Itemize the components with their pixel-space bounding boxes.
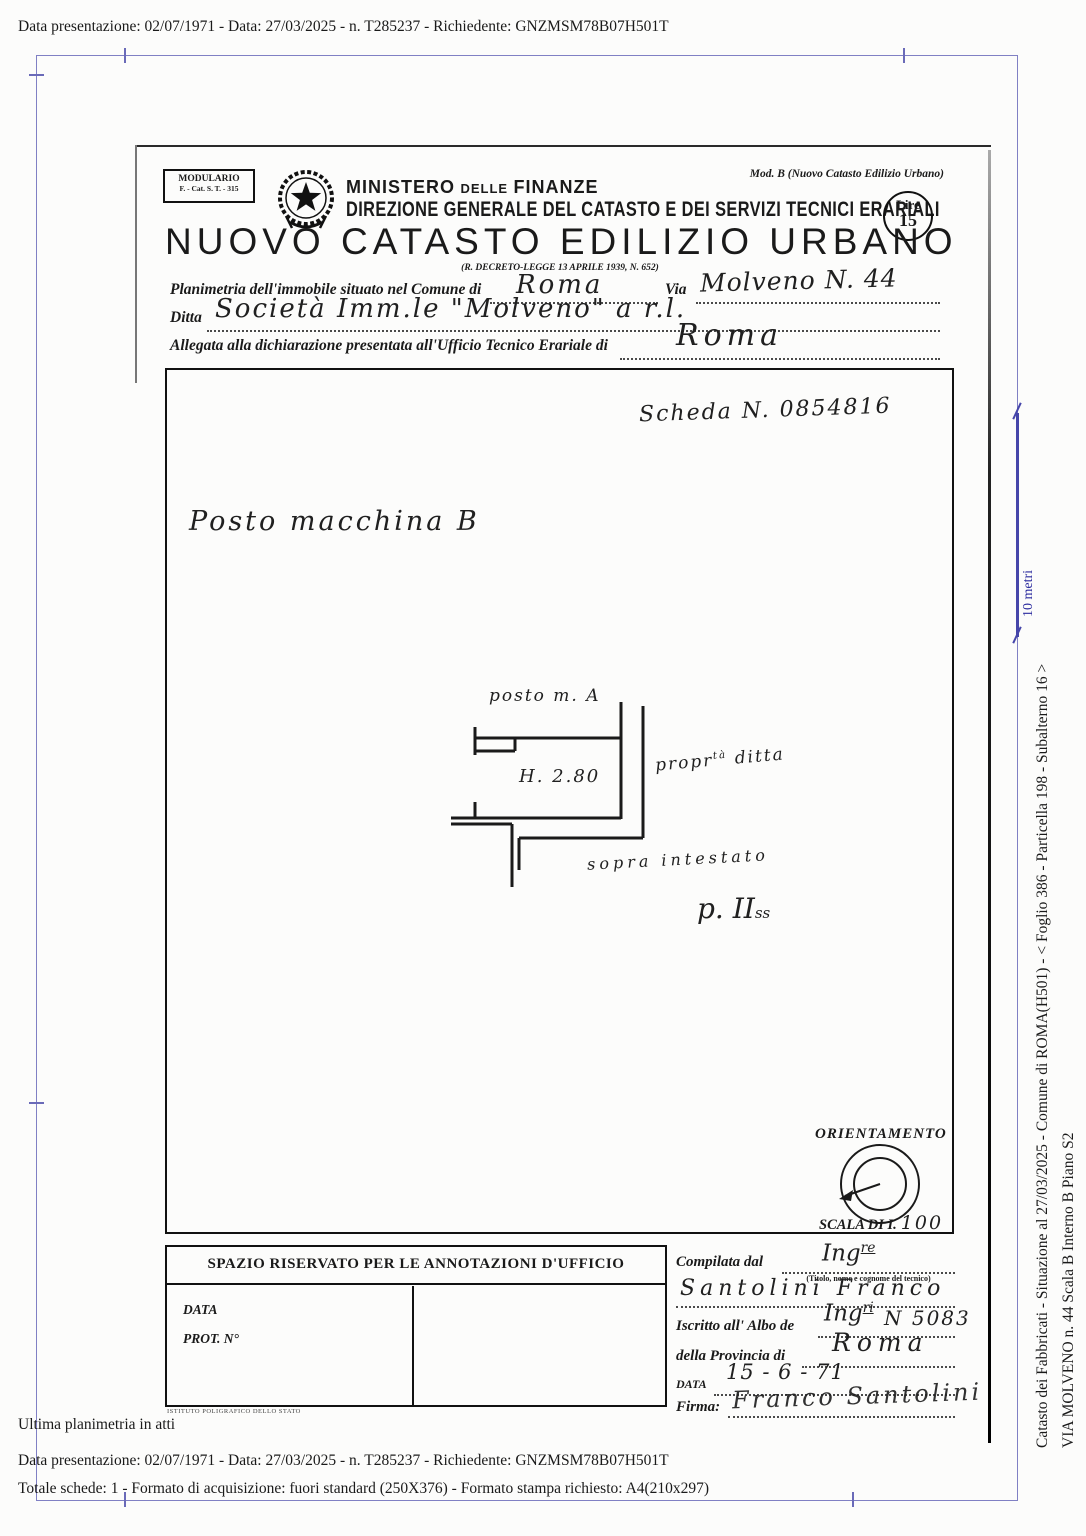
annotations-title: SPAZIO RISERVATO PER LE ANNOTAZIONI D'UF…	[167, 1247, 665, 1273]
plan-label-posto-a: posto m. A	[489, 686, 601, 706]
form-top-edge	[135, 145, 991, 147]
cadastral-document-page: Data presentazione: 02/07/1971 - Data: 2…	[0, 0, 1086, 1536]
modulario-box: MODULARIO F. - Cat. S. T. - 315	[163, 169, 255, 203]
ditta-label: Ditta	[170, 309, 202, 327]
mod-b-note: Mod. B (Nuovo Catasto Edilizio Urbano)	[640, 168, 944, 180]
side-caption-line1: Catasto dei Fabbricati - Situazione al 2…	[1030, 648, 1056, 1448]
frame-tick	[29, 74, 44, 76]
document-title: NUOVO CATASTO EDILIZIO URBANO	[165, 221, 955, 263]
plan-label-piano: p. IIss	[697, 892, 770, 925]
bottom-meta-line2: Totale schede: 1 - Formato di acquisizio…	[18, 1480, 709, 1498]
albo-value: Ingri	[824, 1300, 874, 1327]
floor-plan-drawing	[167, 370, 952, 1232]
scala-label: SCALA DI I.	[819, 1217, 897, 1233]
albo-label: Iscritto all' Albo de	[676, 1318, 794, 1335]
compiler-data-value: 15 - 6 - 71	[726, 1360, 845, 1384]
annotations-box: SPAZIO RISERVATO PER LE ANNOTAZIONI D'UF…	[165, 1245, 667, 1407]
direction-heading: DIREZIONE GENERALE DEL CATASTO E DEI SER…	[346, 198, 940, 222]
ultima-note: Ultima planimetria in atti	[18, 1416, 175, 1434]
scala-value: 100	[901, 1212, 943, 1234]
top-meta-line: Data presentazione: 02/07/1971 - Data: 2…	[18, 18, 669, 36]
side-caption: Catasto dei Fabbricati - Situazione al 2…	[1030, 648, 1084, 1448]
ministry-heading: MINISTERO DELLE FINANZE	[346, 177, 599, 198]
plan-label-height: H. 2.80	[519, 766, 600, 787]
orientamento-label: ORIENTAMENTO	[815, 1126, 947, 1143]
frame-tick	[903, 48, 905, 63]
albo-number: N 5083	[884, 1306, 971, 1330]
plan-canvas: Scheda N. 0854816 Posto macchina B	[165, 368, 954, 1234]
scale-bar	[1016, 413, 1019, 637]
frame-tick	[124, 48, 126, 63]
compilata-label: Compilata dal	[676, 1254, 763, 1271]
finanze-word: FINANZE	[514, 177, 599, 197]
allegata-value: Roma	[676, 318, 783, 353]
annotations-data-label: DATA	[183, 1302, 218, 1318]
provincia-value: Roma	[832, 1328, 929, 1357]
ditta-value: Società Imm.le "Molveno" a r.l.	[215, 294, 686, 324]
bottom-meta-line1: Data presentazione: 02/07/1971 - Data: 2…	[18, 1452, 669, 1470]
printer-credit: ISTITUTO POLIGRAFICO DELLO STATO	[167, 1408, 301, 1415]
firma-label: Firma:	[676, 1399, 720, 1416]
via-value: Molveno N. 44	[700, 263, 898, 297]
name-value: Santolini Franco	[680, 1276, 945, 1301]
annotations-header: SPAZIO RISERVATO PER LE ANNOTAZIONI D'UF…	[167, 1247, 665, 1285]
allegata-label: Allegata alla dichiarazione presentata a…	[170, 337, 608, 355]
scala-line: SCALA DI I. 100	[819, 1212, 943, 1234]
annotations-prot-label: PROT. N°	[183, 1331, 239, 1347]
paper-edge-line	[988, 150, 991, 1443]
frame-tick	[29, 1102, 44, 1104]
annotations-divider	[412, 1286, 414, 1405]
side-caption-line2: VIA MOLVENO n. 44 Scala B Interno B Pian…	[1056, 648, 1082, 1448]
modulario-line2: F. - Cat. S. T. - 315	[165, 184, 253, 193]
form-left-edge	[135, 145, 137, 383]
ministry-word: MINISTERO	[346, 177, 455, 197]
compilata-value: Ingre	[822, 1240, 875, 1267]
modulario-line1: MODULARIO	[165, 174, 253, 184]
scale-bar-label: 10 metri	[1021, 545, 1037, 617]
compiler-data-label: DATA	[676, 1377, 707, 1392]
delle-word: DELLE	[460, 181, 508, 196]
frame-tick	[852, 1492, 854, 1507]
